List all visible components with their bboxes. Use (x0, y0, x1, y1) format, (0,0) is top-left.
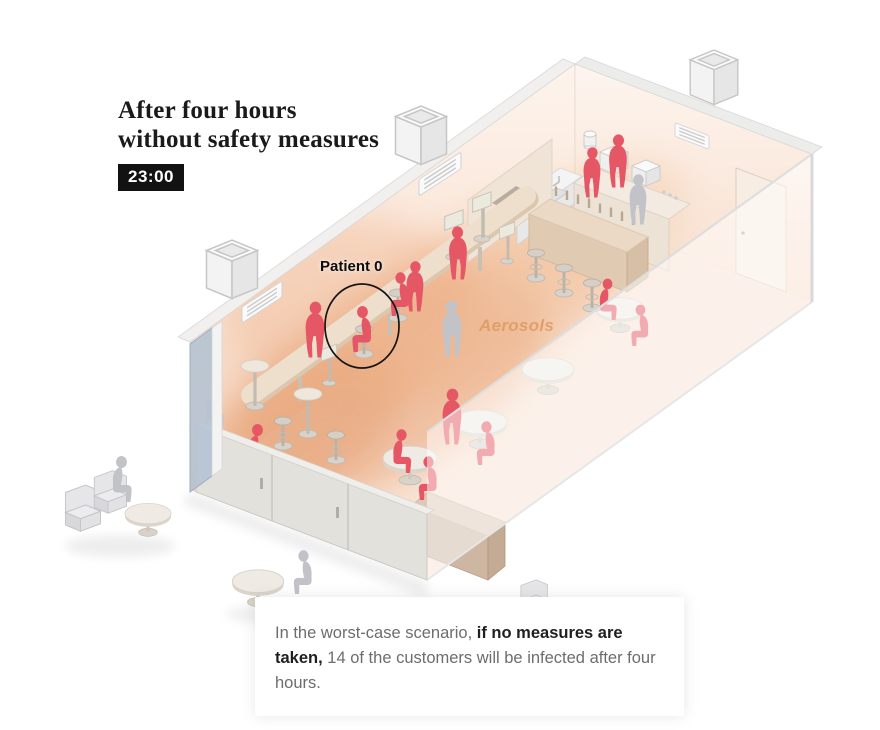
ac-unit-icon (396, 106, 447, 165)
caption-prefix: In the worst-case scenario, (275, 624, 477, 642)
time-badge: 23:00 (118, 164, 184, 191)
caption-suffix: 14 of the customers will be infected aft… (275, 649, 656, 692)
title-line1: After four hours (118, 96, 379, 125)
page-title: After four hours without safety measures (118, 96, 379, 154)
infographic-stage: After four hours without safety measures… (0, 0, 880, 730)
healthy-person (294, 550, 312, 594)
title-line2: without safety measures (118, 125, 379, 154)
ac-unit-icon (690, 50, 738, 105)
ac-unit-icon (207, 240, 258, 299)
terrace-table (125, 503, 171, 536)
caption-box: In the worst-case scenario, if no measur… (255, 597, 684, 716)
entrance-glass-door (190, 328, 212, 492)
patient-zero-label: Patient 0 (320, 258, 383, 275)
aerosols-label: Aerosols (479, 316, 554, 336)
